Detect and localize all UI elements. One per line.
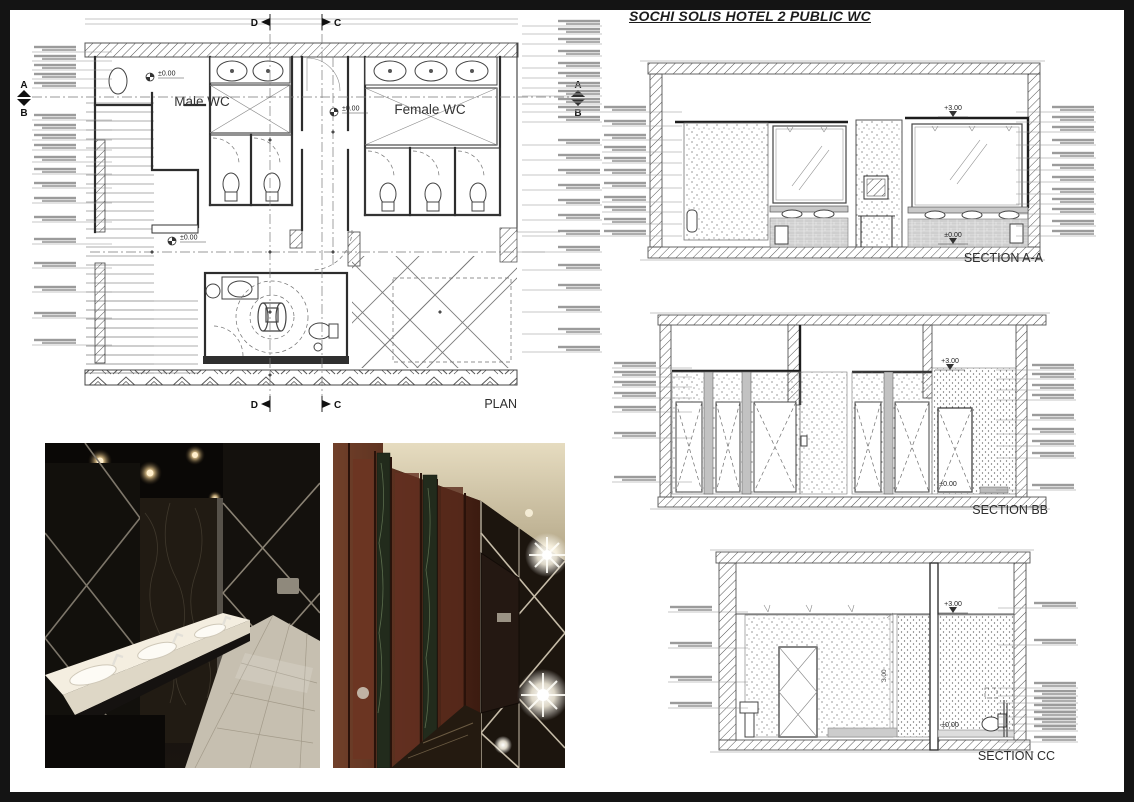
accessible-wc-room <box>203 273 349 364</box>
svg-text:C: C <box>334 400 341 411</box>
mirror-male <box>773 126 846 203</box>
toilet <box>309 323 338 339</box>
feature-wall <box>745 615 893 737</box>
cc-floor-level: ±0.00 <box>941 722 959 729</box>
male-wc-label: Male WC <box>174 94 230 109</box>
plan-bottom-paving-band <box>85 370 517 385</box>
cc-top-level: +3.00 <box>944 601 962 608</box>
plan-drawing: Male WC Female WC <box>17 14 602 430</box>
toilet <box>425 183 441 211</box>
photo-corridor-mirror <box>333 443 569 768</box>
female-wc-label: Female WC <box>394 102 466 117</box>
svg-text:C: C <box>334 18 341 29</box>
bb-top-level: +3.00 <box>941 358 959 365</box>
section-bb: +3.00 ±0.00 SECTION BB <box>612 313 1076 517</box>
bb-floor-level: ±0.00 <box>939 481 957 488</box>
aa-top-level: +3.00 <box>944 105 962 112</box>
section-marker-c-bottom: C <box>322 396 341 412</box>
aa-floor-level: ±0.00 <box>944 232 962 239</box>
section-cc: 3.00 +3.00 ±0.00 SECTION CC <box>668 550 1078 763</box>
section-marker-ab-left: A B <box>17 80 31 119</box>
urinal-elevation <box>687 210 697 232</box>
section-marker-d-bottom: D <box>251 396 270 412</box>
svg-text:3.00: 3.00 <box>881 669 888 682</box>
svg-text:D: D <box>251 18 258 29</box>
toilet <box>380 183 396 211</box>
mirror-female <box>912 124 1022 208</box>
toilet <box>470 183 486 211</box>
urinal <box>109 68 127 94</box>
male-counter-elevation <box>770 206 848 212</box>
svg-text:±0.00: ±0.00 <box>342 106 360 113</box>
finish-tags-aa-left <box>602 106 682 236</box>
section-aa-label: SECTION A-A <box>964 251 1044 265</box>
svg-text:±0.00: ±0.00 <box>158 71 176 78</box>
section-aa: +3.00 ±0.00 SECTION A-A <box>602 61 1096 265</box>
toilet <box>223 173 239 201</box>
wheelchair-symbol <box>258 303 286 331</box>
finish-tags-plan-right <box>522 20 602 352</box>
door-knob <box>357 687 369 699</box>
svg-text:±0.00: ±0.00 <box>180 235 198 242</box>
svg-text:B: B <box>20 108 27 119</box>
plan-label: PLAN <box>484 397 517 411</box>
lattice-door <box>779 647 817 737</box>
photo-washbasin-counter <box>45 443 320 773</box>
svg-text:A: A <box>20 80 27 91</box>
corridor-floor-pattern <box>300 175 560 430</box>
section-marker-c-top: C <box>322 14 341 30</box>
entrance-corridor <box>307 58 352 270</box>
towel-dispenser <box>277 578 299 594</box>
drawing-sheet: SOCHI SOLIS HOTEL 2 PUBLIC WC <box>0 0 1134 802</box>
svg-text:D: D <box>251 400 258 411</box>
section-bb-label: SECTION BB <box>972 503 1048 517</box>
toilet <box>264 173 280 201</box>
section-cc-label: SECTION CC <box>978 749 1055 763</box>
section-marker-d-top: D <box>251 14 270 30</box>
plan-top-wall <box>85 43 518 57</box>
plan-and-sections-drawing: Male WC Female WC <box>0 0 1134 802</box>
far-door-reflection <box>481 553 519 713</box>
female-wc-room: Female WC <box>365 57 500 215</box>
